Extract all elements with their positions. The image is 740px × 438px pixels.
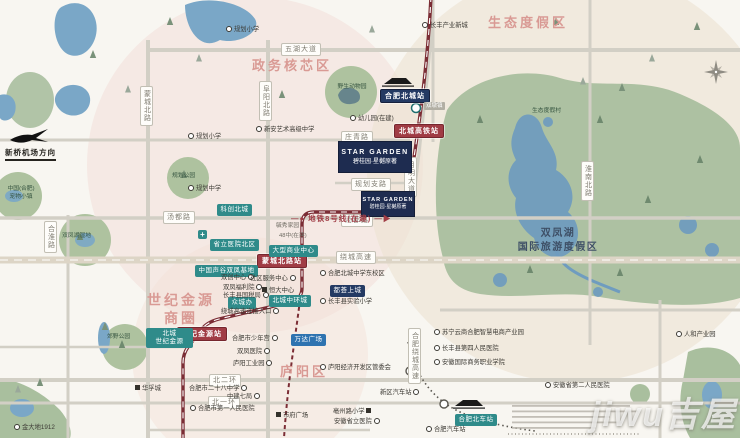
circle-marker-icon [290,275,296,281]
poi-item: 新区汽车站 [380,389,421,398]
road-label: 汤都路 [163,211,195,224]
circle-marker-icon [266,360,272,366]
road-label: 合淮路 [44,221,57,253]
map-canvas: + 政务核芯区生态度假区世纪金源商圈庐阳区双凤湖国际旅游度假区五湖大道庄青路规划… [0,0,740,438]
map-labels-layer: + 政务核芯区生态度假区世纪金源商圈庐阳区双凤湖国际旅游度假区五湖大道庄青路规划… [0,0,740,438]
poi-badge: 北城中环城 [269,295,311,307]
place-tag: 双墩镇 [424,102,445,110]
poi-badge: 万达广场 [291,334,326,346]
park-label: 规划公园 [172,173,195,181]
poi-badge: 北城世纪金源 [146,328,193,348]
poi-item: 庐阳经济开发区管委会 [318,364,391,373]
poi-item: 社区服务中心 [250,275,298,284]
road-label: 阜阳北路 [259,81,272,121]
poi-item: 华孚城 [133,385,161,394]
poi-item: 合肥市第一人民医院 [188,405,255,414]
poi-item: 长丰产业新城 [420,22,468,31]
lake-resort-label: 双凤湖国际旅游度假区 [502,227,614,255]
poi-badge: 省立医院北区 [210,239,259,251]
circle-marker-icon [413,389,419,395]
hospital-cross-icon: + [198,230,207,239]
station-badge: 北城高铁站 [394,124,444,138]
poi-item: 规划小学 [224,26,259,35]
circle-marker-icon [14,424,20,430]
square-marker-icon [135,385,140,390]
poi-item: 庐阳工业园 [233,360,274,369]
poi-item: 合肥市少年宫 [232,335,280,344]
park-label: 生态度假村 [532,108,561,116]
poi-item: 规划中学 [186,185,221,194]
circle-marker-icon [434,345,440,351]
poi-item: 市府广场 [274,412,308,421]
airport-direction-label: 新桥机场方向 [5,148,56,161]
circle-marker-icon [374,418,380,424]
park-label: 野生动物园 [330,84,374,92]
circle-marker-icon [188,133,194,139]
district-label: 政务核芯区 [252,57,332,75]
circle-marker-icon [254,393,260,399]
poi-item: 安徽省立医院 [334,418,382,427]
road-label: 合肥绕城高速 [408,328,421,384]
circle-marker-icon [434,359,440,365]
poi-item: 安徽国际商务职业学院 [432,359,505,368]
poi-badge: 科创北城 [217,204,252,216]
circle-marker-icon [422,22,428,28]
district-label: 生态度假区 [488,14,568,32]
poi-badge: 大型商业中心 [269,245,318,257]
road-label: 绕城高速 [336,251,376,264]
poi-item: 48中(在建) [279,233,307,241]
circle-marker-icon [434,329,440,335]
circle-marker-icon [426,426,432,432]
circle-marker-icon [264,348,270,354]
metro-line-label: 地铁8号线(在建) [291,214,391,224]
poi-item: 长丰县第四人民医院 [432,345,499,354]
road-label: 五湖大道 [281,43,321,56]
circle-marker-icon [320,364,326,370]
park-label: 双凤湖湿地 [62,233,91,241]
poi-item: 绕城高速连接入口 [221,308,281,317]
circle-marker-icon [272,335,278,341]
circle-marker-icon [188,185,194,191]
poi-item: 合肥北城中学东校区 [318,270,385,279]
circle-marker-icon [190,405,196,411]
poi-item: 合肥汽车站 [424,426,465,435]
project-block: STAR GARDEN碧桂园·星樾原著 [339,142,411,172]
project-block: STAR GARDEN碧桂园·星樾原著 [362,192,414,216]
watermark: jiwu吉屋 [591,387,737,436]
circle-marker-icon [273,308,279,314]
circle-marker-icon [226,26,232,32]
poi-item: 金大地1912 [12,424,55,433]
park-label: 中国(合肥)宠物小镇 [0,186,42,201]
station-badge: 合肥北城站 [380,89,430,103]
square-marker-icon [276,412,281,417]
poi-item: 新安艺术高级中学 [254,126,314,135]
road-label: 规划支路 [351,178,391,191]
road-label: 淮南北路 [581,161,594,201]
poi-item: 人和产业园 [674,331,715,340]
square-marker-icon [366,408,371,413]
poi-item: 亳州路小学 [333,408,373,417]
poi-item: 长丰县实验小学 [318,298,372,307]
poi-item: 幼儿园(在建) [348,115,394,124]
road-label: 蒙城北路 [140,86,153,126]
circle-marker-icon [241,385,247,391]
poi-item: 毓秀家园 [276,223,299,231]
circle-marker-icon [320,270,326,276]
circle-marker-icon [320,298,326,304]
poi-badge: 都荟上城 [330,285,365,297]
poi-item: 规划小学 [186,133,221,142]
district-label: 世纪金源商圈 [134,293,228,329]
poi-item: 双凤医院 [237,348,272,357]
circle-marker-icon [256,126,262,132]
park-label: 郊野公园 [107,334,130,342]
circle-marker-icon [545,382,551,388]
poi-badge: 合肥北车站 [455,414,497,426]
poi-item: 中建七局 [227,393,262,402]
circle-marker-icon [350,115,356,121]
circle-marker-icon [676,331,682,337]
poi-item: 恒大中心 [260,287,294,296]
square-marker-icon [262,287,267,292]
poi-item: 苏宁云商合肥智慧电商产业园 [432,329,524,338]
